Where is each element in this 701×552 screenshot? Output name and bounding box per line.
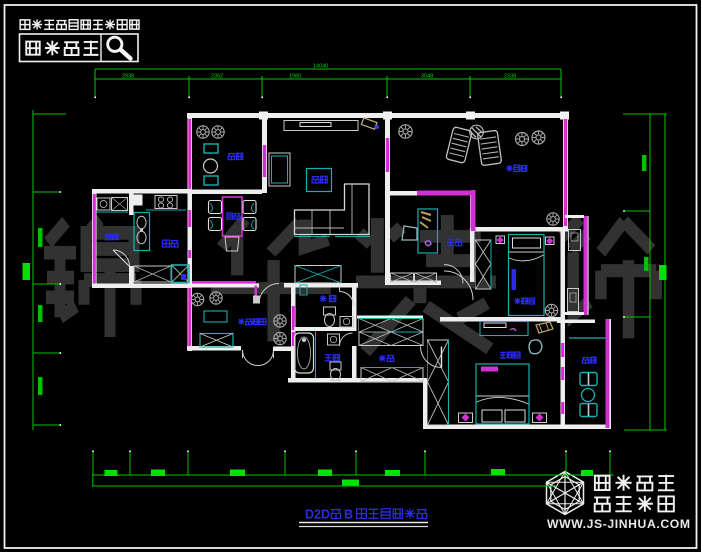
svg-text:WWW.JS-JINHUA.COM: WWW.JS-JINHUA.COM <box>547 517 691 531</box>
svg-text:B: B <box>344 508 353 522</box>
svg-text:1980: 1980 <box>289 74 301 80</box>
svg-text:2938: 2938 <box>122 74 134 80</box>
svg-text:14040: 14040 <box>313 64 328 70</box>
svg-text:3048: 3048 <box>421 74 433 80</box>
svg-text:2362: 2362 <box>211 74 223 80</box>
svg-text:D2D: D2D <box>305 508 330 522</box>
svg-text:2338: 2338 <box>504 74 516 80</box>
